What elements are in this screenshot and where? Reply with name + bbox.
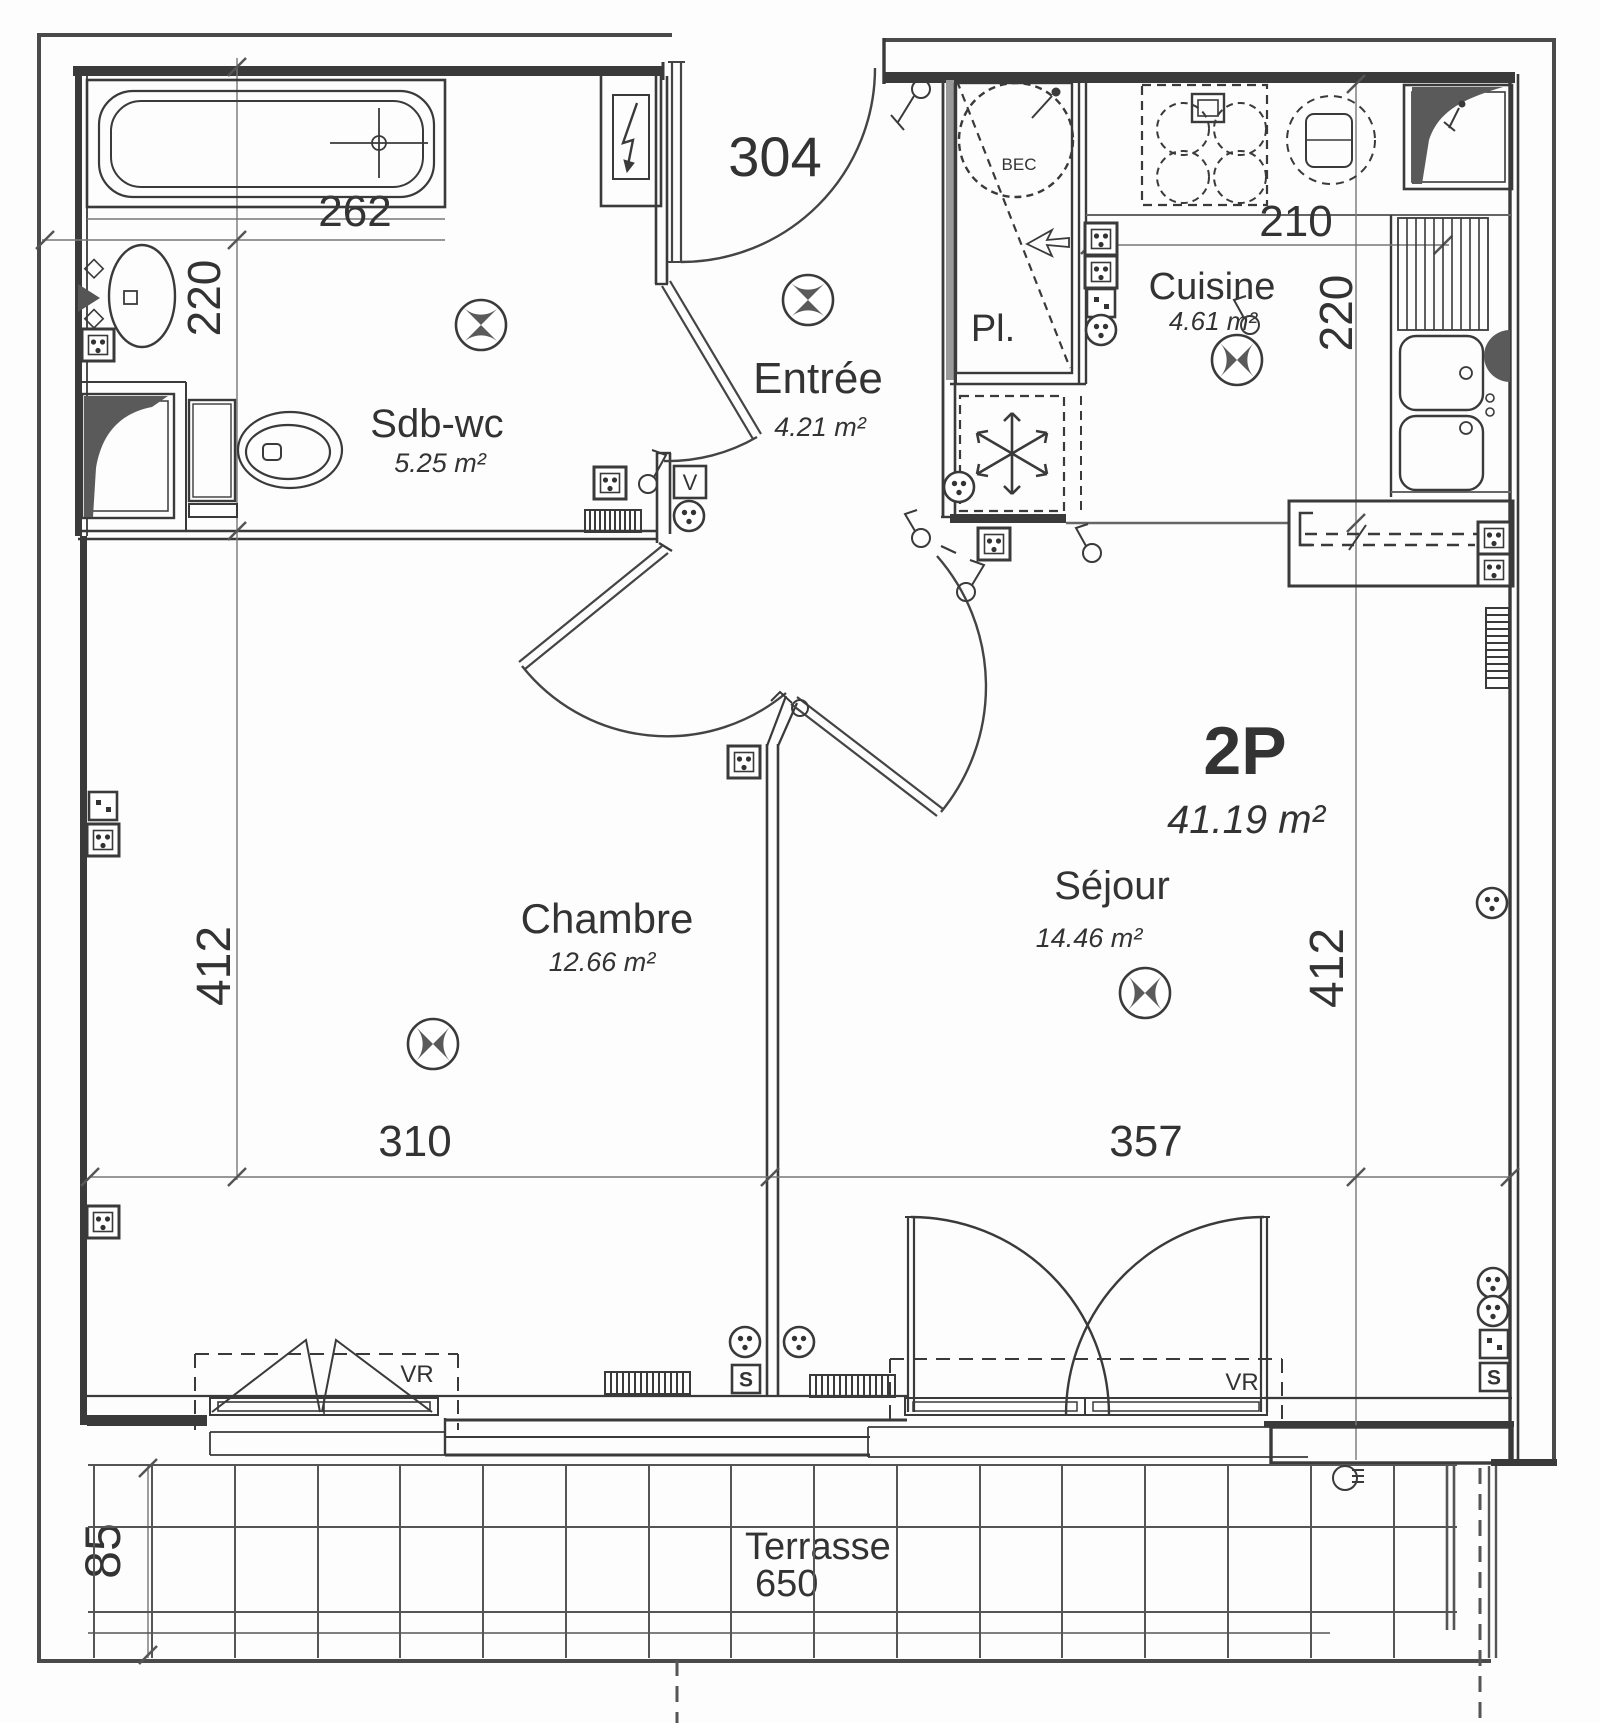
svg-text:310: 310 [378,1117,451,1166]
svg-text:220: 220 [1310,275,1362,352]
svg-text:Terrasse: Terrasse [745,1526,891,1568]
svg-text:304: 304 [728,125,821,188]
svg-text:2P: 2P [1203,713,1286,789]
svg-text:Entrée: Entrée [753,354,883,403]
svg-text:12.66 m²: 12.66 m² [549,947,657,977]
svg-text:220: 220 [178,260,230,337]
svg-text:VR: VR [1225,1369,1258,1396]
svg-text:Chambre: Chambre [521,895,694,942]
svg-text:Cuisine: Cuisine [1149,266,1276,308]
svg-text:V: V [683,470,698,495]
svg-text:Sdb-wc: Sdb-wc [370,402,503,446]
svg-text:BEC: BEC [1002,155,1037,174]
svg-text:Séjour: Séjour [1054,864,1170,908]
svg-text:650: 650 [755,1563,818,1605]
svg-text:Pl.: Pl. [971,308,1015,350]
svg-text:210: 210 [1259,197,1332,246]
svg-text:357: 357 [1109,1117,1182,1166]
svg-text:VR: VR [400,1361,433,1388]
svg-text:262: 262 [318,187,391,236]
svg-text:4.21 m²: 4.21 m² [774,412,867,442]
svg-text:5.25 m²: 5.25 m² [394,448,487,478]
svg-text:412: 412 [1301,928,1354,1008]
svg-text:412: 412 [188,926,241,1006]
svg-text:14.46 m²: 14.46 m² [1036,923,1144,953]
svg-text:41.19 m²: 41.19 m² [1167,798,1327,842]
svg-text:85: 85 [75,1523,131,1579]
